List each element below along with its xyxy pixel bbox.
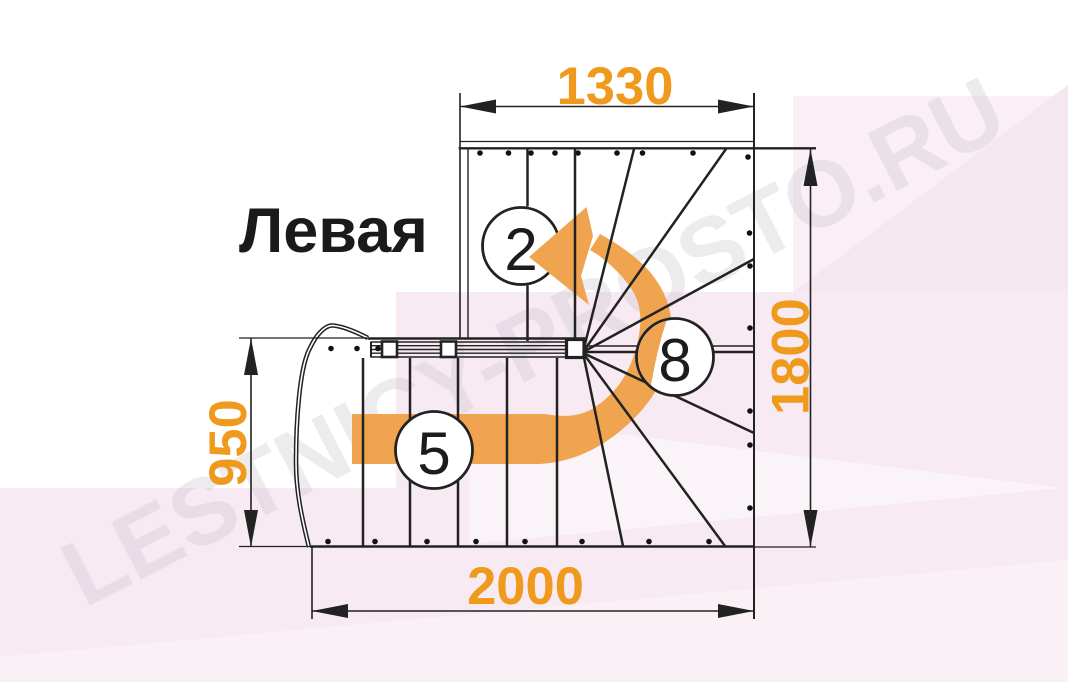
svg-text:Левая: Левая (239, 196, 428, 266)
svg-text:1800: 1800 (762, 298, 821, 415)
svg-text:1330: 1330 (557, 57, 674, 116)
svg-text:8: 8 (658, 327, 691, 394)
svg-text:2: 2 (504, 216, 537, 283)
svg-text:2000: 2000 (467, 557, 584, 616)
svg-text:950: 950 (199, 399, 258, 487)
svg-text:5: 5 (417, 420, 450, 487)
